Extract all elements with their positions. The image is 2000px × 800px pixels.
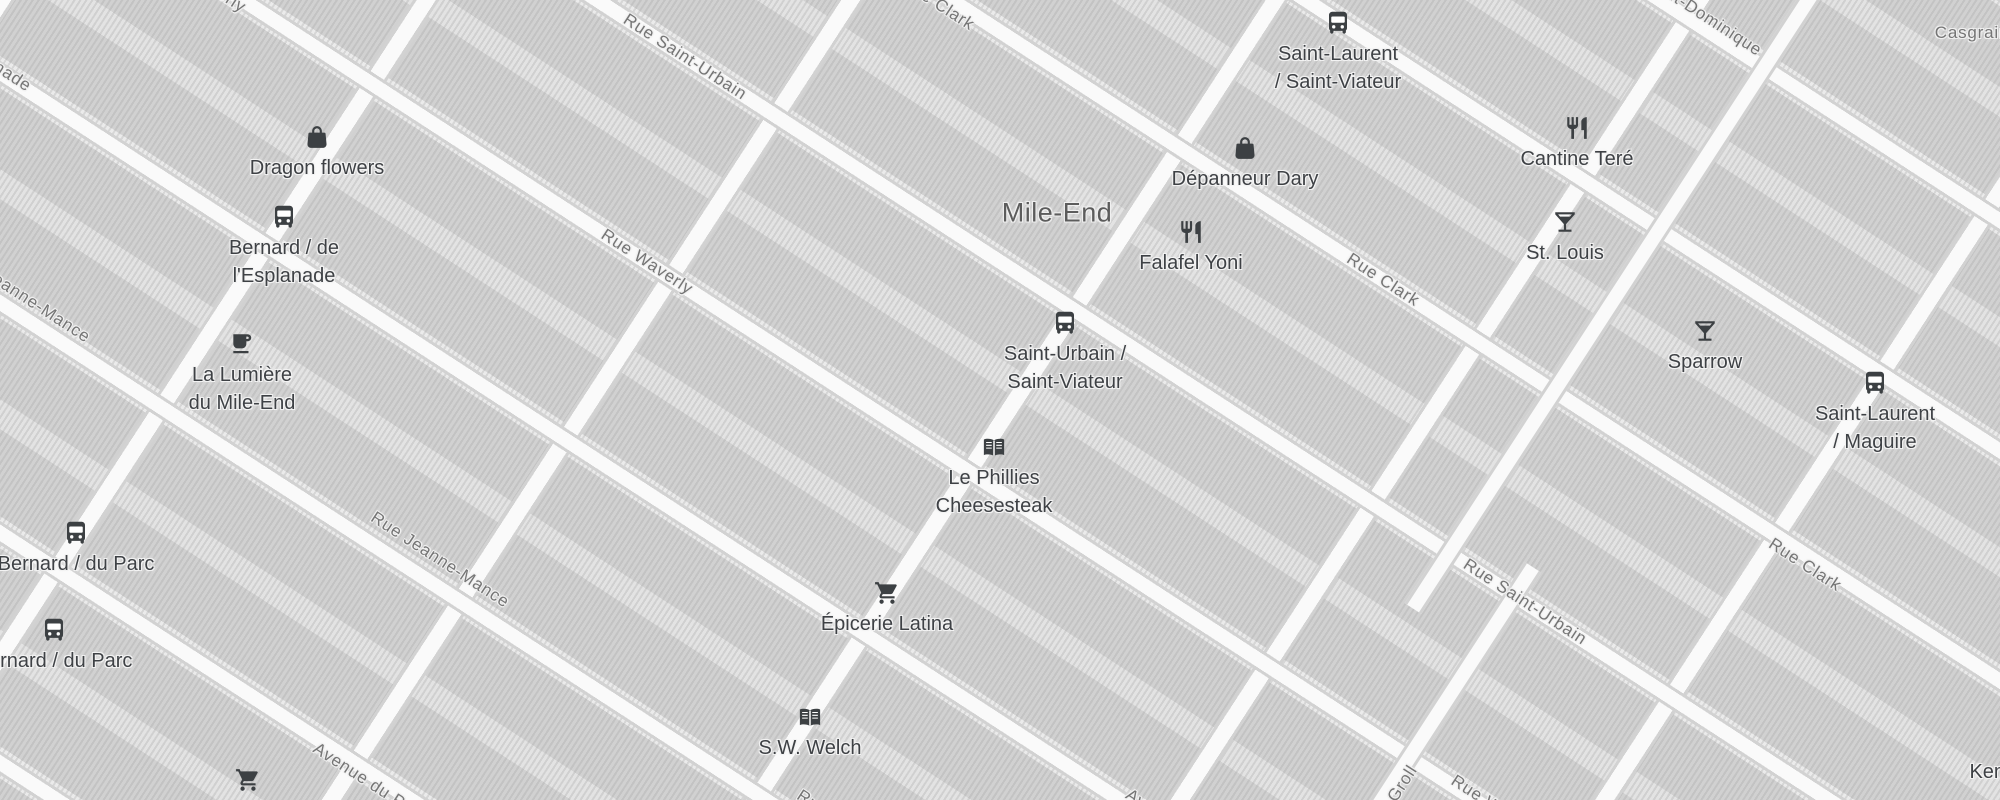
bus-icon [271, 204, 298, 231]
poi-bernard-de-lesplanade[interactable] [271, 204, 298, 231]
bus-icon [63, 520, 90, 547]
cafe-icon [229, 331, 255, 357]
poi-bernard-du-parc-nord[interactable] [63, 520, 90, 547]
bus-icon [1325, 10, 1352, 37]
poi-saint-urbain-saint-viateur[interactable] [1052, 310, 1079, 337]
bus-icon [1862, 370, 1889, 397]
poi-le-phillies-cheesesteak[interactable] [981, 434, 1008, 461]
bus-icon [41, 617, 68, 644]
book-icon [981, 434, 1008, 461]
poi-depanneur-dary[interactable] [1232, 135, 1258, 161]
poi-epicerie-latina[interactable] [874, 580, 900, 606]
road-segment [925, 562, 1541, 800]
cart-icon [235, 767, 261, 793]
bar-icon [1552, 209, 1578, 235]
bus-icon [1052, 310, 1079, 337]
poi-bernard-du-parc-sud[interactable] [41, 617, 68, 644]
cart-icon [874, 580, 900, 606]
bar-icon [1692, 318, 1718, 344]
poi-dragon-flowers[interactable] [304, 124, 330, 150]
poi-grocery-edge[interactable] [235, 767, 261, 793]
poi-saint-laurent-saint-viateur[interactable] [1325, 10, 1352, 37]
poi-sparrow[interactable] [1692, 318, 1718, 344]
map-ground [0, 0, 2000, 800]
restaurant-icon [1178, 219, 1204, 245]
road-segment [1405, 0, 1912, 614]
map-canvas[interactable]: Mile-End Dragon flowersBernard / del'Esp… [0, 0, 2000, 800]
basket-icon [1232, 135, 1258, 161]
poi-sw-welch[interactable] [797, 704, 824, 731]
restaurant-icon [1564, 115, 1590, 141]
book-icon [797, 704, 824, 731]
poi-la-lumiere-du-mile-end[interactable] [229, 331, 255, 357]
poi-st-louis[interactable] [1552, 209, 1578, 235]
basket-icon [304, 124, 330, 150]
poi-cantine-tere[interactable] [1564, 115, 1590, 141]
poi-saint-laurent-maguire[interactable] [1862, 370, 1889, 397]
area-label-mile-end: Mile-End [1002, 198, 1113, 229]
poi-falafel-yoni[interactable] [1178, 219, 1204, 245]
